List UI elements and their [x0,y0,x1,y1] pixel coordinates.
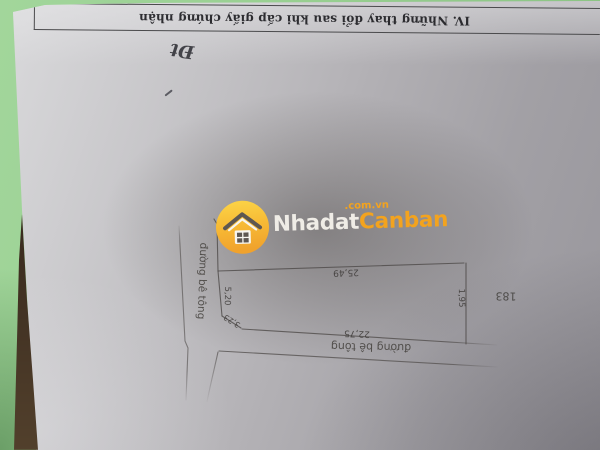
road-label-horizontal: đường bê tông [331,340,412,354]
brand-name-part1: Nhadat [273,210,360,237]
dimension-bottom-edge: 22,75 [344,328,370,339]
brand-name: NhadatCanban [273,207,449,237]
photo-scene: IV. Những thay đổi sau khi cấp giấy chứn… [0,0,600,450]
parcel-number-label: 183 [495,289,516,302]
dimension-right-edge: 1,95 [456,288,466,307]
house-icon [215,200,269,254]
document-paper: IV. Những thay đổi sau khi cấp giấy chứn… [0,0,600,450]
dimension-left-edge: 5,20 [222,286,232,305]
watermark-logo: NhadatCanban .com.vn [215,194,399,257]
brand-domain-suffix: .com.vn [344,200,389,212]
dimension-top-edge: 25,49 [333,267,359,278]
